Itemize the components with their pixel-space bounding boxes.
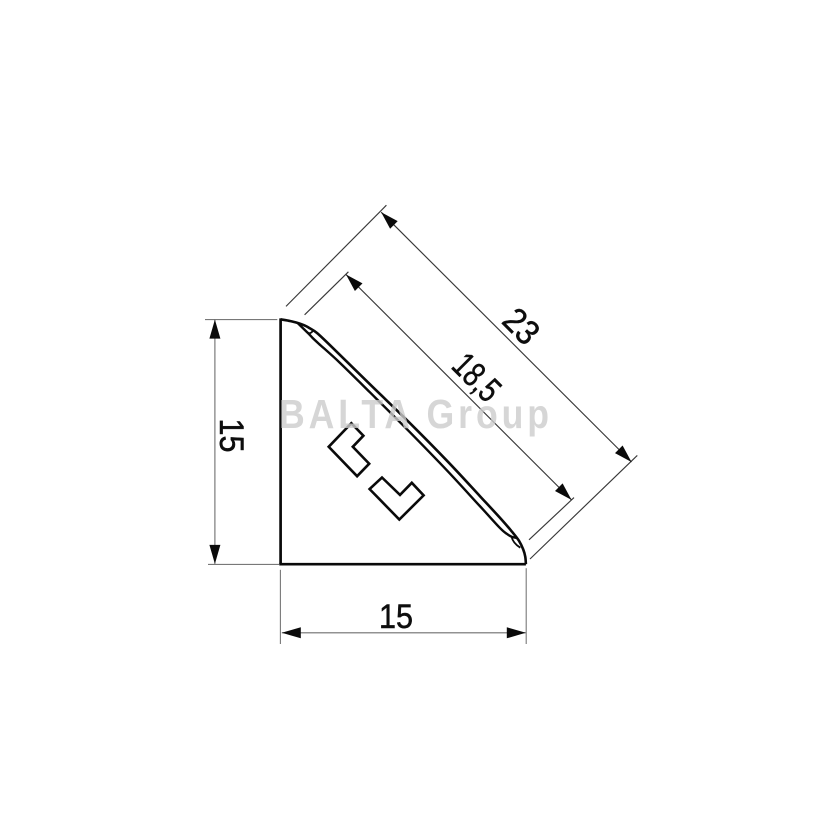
svg-text:15: 15 — [379, 598, 413, 636]
svg-text:BALTA Group: BALTA Group — [279, 391, 553, 437]
svg-text:15: 15 — [212, 419, 250, 453]
